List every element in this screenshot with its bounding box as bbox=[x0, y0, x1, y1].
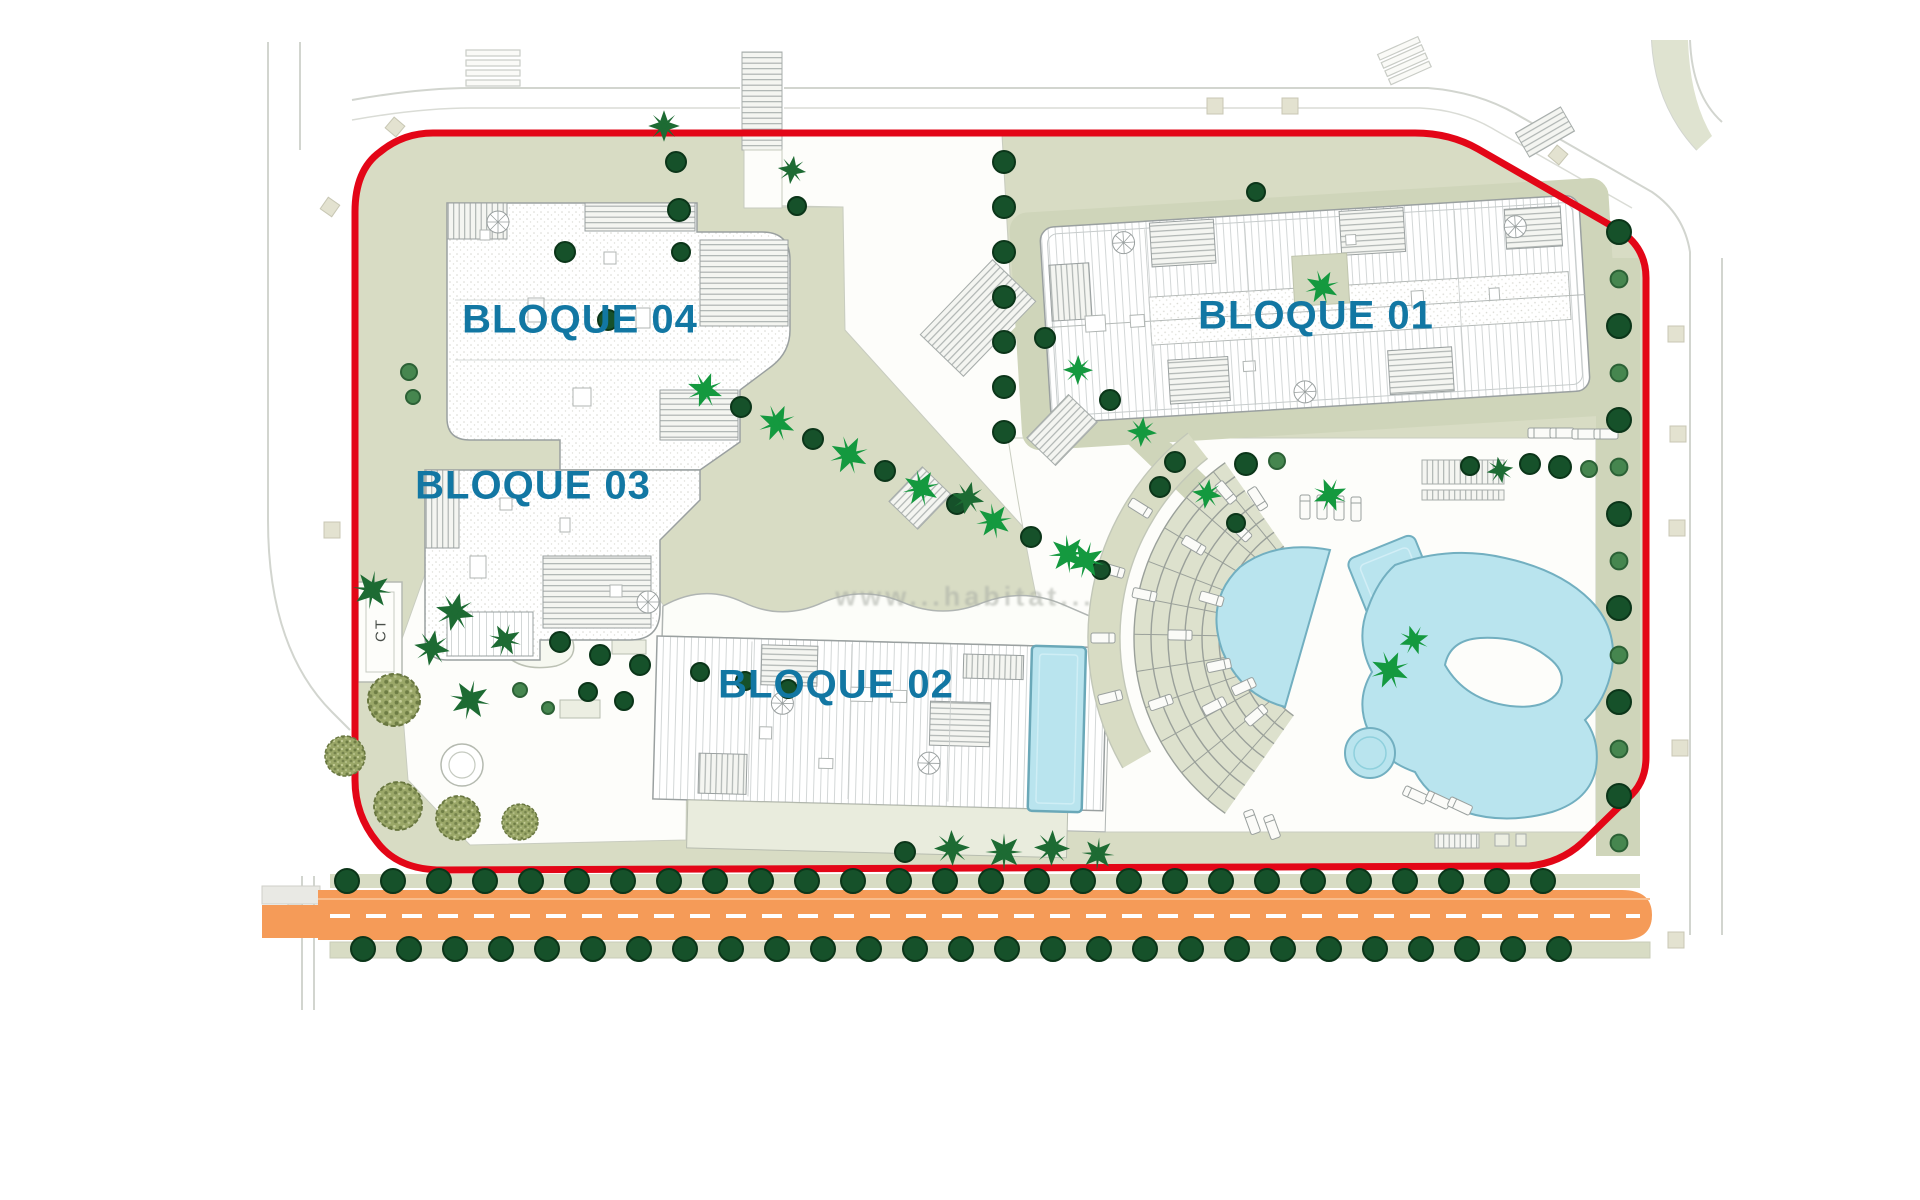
label-bloque-02: BLOQUE 02 bbox=[718, 663, 954, 708]
label-bloque-01: BLOQUE 01 bbox=[1198, 294, 1434, 339]
label-ct: CT bbox=[373, 618, 390, 642]
label-bloque-04: BLOQUE 04 bbox=[462, 298, 698, 343]
label-bloque-03: BLOQUE 03 bbox=[415, 464, 651, 509]
crosswalk-top-right bbox=[1378, 37, 1432, 85]
crosswalk-top-left bbox=[466, 50, 520, 86]
site-plan-page: BLOQUE 04 BLOQUE 03 BLOQUE 02 BLOQUE 01 … bbox=[0, 0, 1920, 1200]
bloque-02-pool bbox=[1028, 646, 1086, 812]
crosswalks bbox=[466, 37, 1431, 86]
play-circle bbox=[441, 744, 483, 786]
building-bloque-02 bbox=[652, 586, 1112, 859]
jacuzzi bbox=[1345, 728, 1395, 778]
watermark: www...habitat... bbox=[835, 582, 1095, 613]
